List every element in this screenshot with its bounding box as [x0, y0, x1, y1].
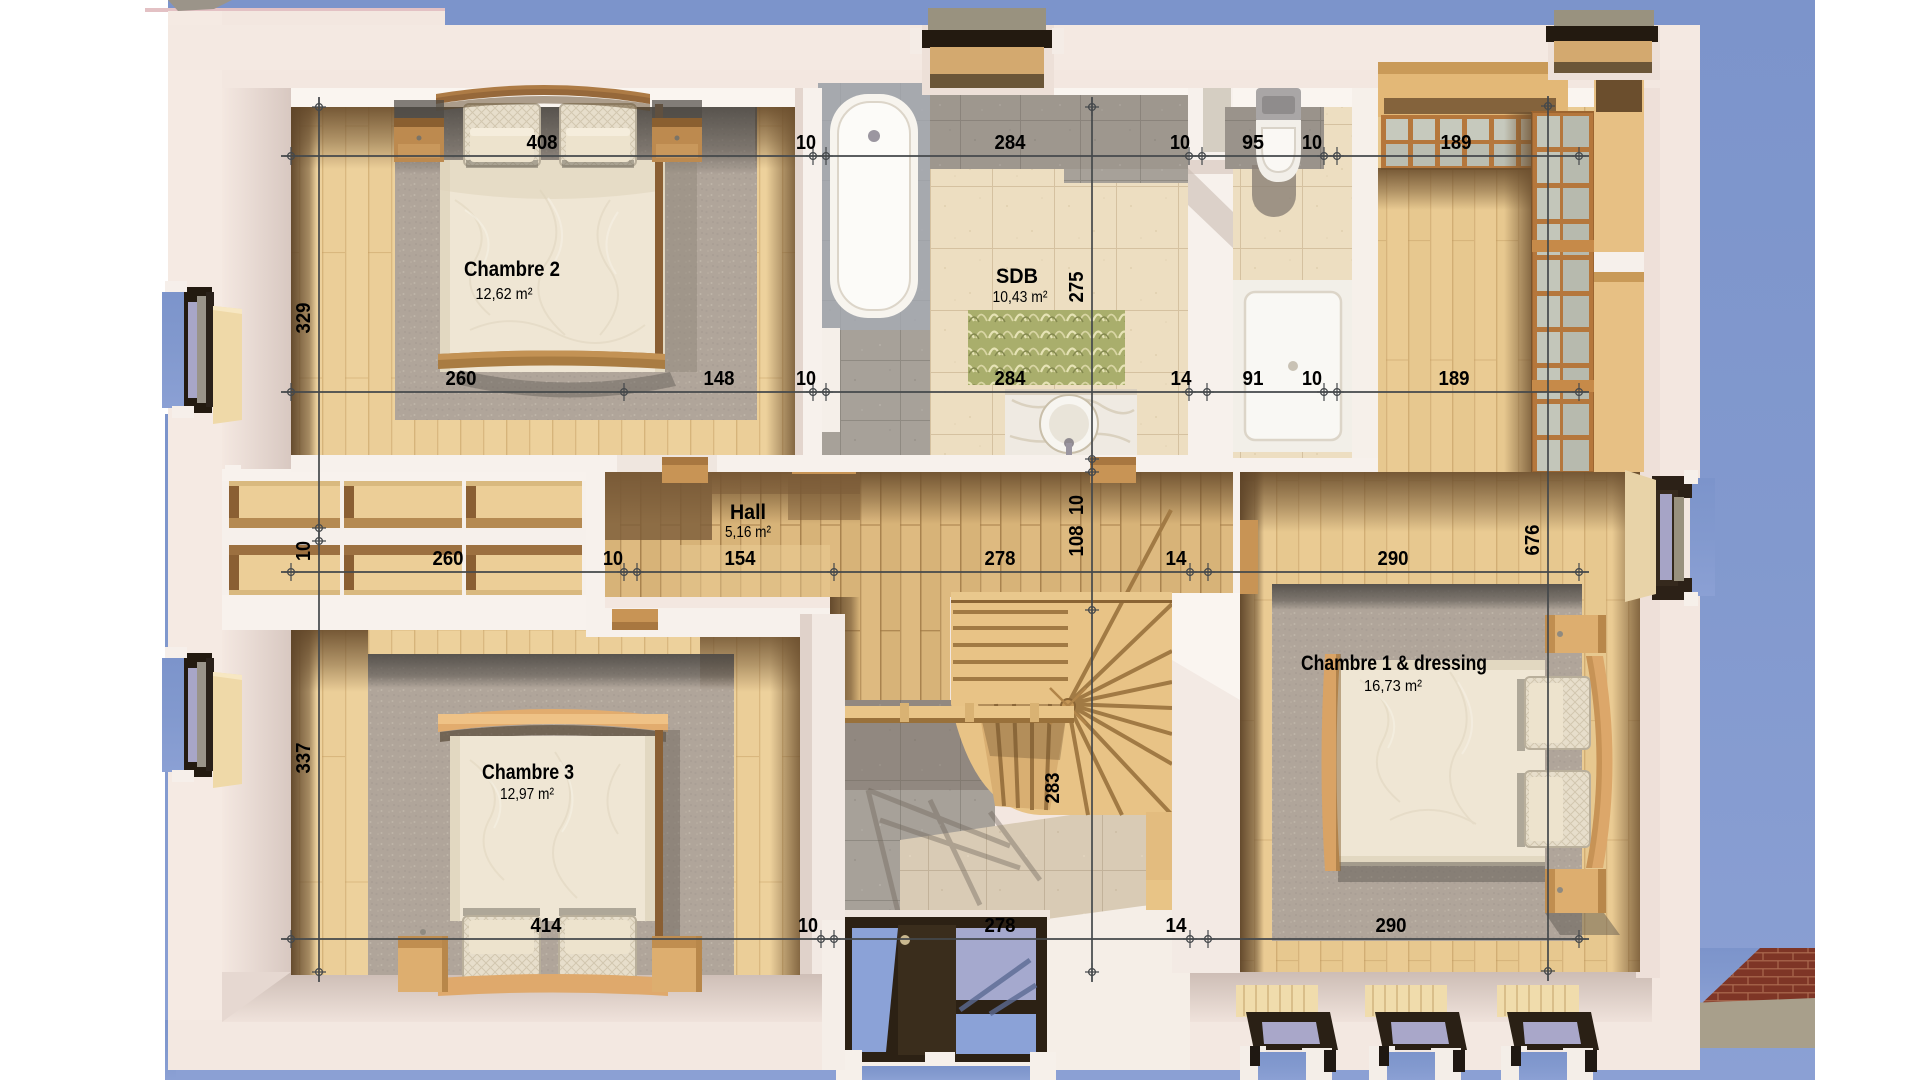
svg-text:12,62 m²: 12,62 m²: [476, 286, 534, 303]
svg-text:275: 275: [1066, 272, 1088, 303]
svg-text:154: 154: [725, 548, 757, 570]
svg-text:10: 10: [1302, 132, 1322, 154]
svg-text:260: 260: [433, 548, 464, 570]
svg-text:91: 91: [1243, 368, 1264, 390]
svg-text:12,97 m²: 12,97 m²: [500, 786, 555, 803]
svg-text:290: 290: [1376, 915, 1407, 937]
svg-text:14: 14: [1166, 915, 1188, 937]
svg-text:16,73 m²: 16,73 m²: [1364, 678, 1423, 695]
svg-text:676: 676: [1522, 525, 1544, 556]
svg-text:10: 10: [293, 541, 315, 561]
svg-text:5,16 m²: 5,16 m²: [725, 524, 772, 541]
svg-text:10: 10: [796, 132, 816, 154]
svg-text:414: 414: [531, 915, 563, 937]
svg-text:10: 10: [603, 548, 623, 570]
svg-text:10: 10: [1170, 132, 1190, 154]
svg-text:Chambre 2: Chambre 2: [464, 258, 560, 281]
svg-text:284: 284: [995, 132, 1027, 154]
svg-text:284: 284: [995, 368, 1027, 390]
svg-text:Chambre 1 & dressing: Chambre 1 & dressing: [1301, 652, 1487, 675]
svg-text:10: 10: [798, 915, 818, 937]
svg-text:278: 278: [985, 915, 1016, 937]
svg-text:14: 14: [1171, 368, 1193, 390]
svg-text:14: 14: [1166, 548, 1188, 570]
svg-text:337: 337: [293, 743, 315, 774]
svg-text:10,43 m²: 10,43 m²: [993, 289, 1049, 306]
svg-text:108: 108: [1066, 526, 1088, 557]
svg-text:290: 290: [1378, 548, 1409, 570]
svg-text:329: 329: [293, 303, 315, 334]
svg-text:Hall: Hall: [730, 501, 766, 524]
svg-text:189: 189: [1441, 132, 1472, 154]
svg-text:10: 10: [1302, 368, 1322, 390]
svg-text:278: 278: [985, 548, 1016, 570]
svg-text:260: 260: [446, 368, 477, 390]
svg-text:Chambre 3: Chambre 3: [482, 761, 574, 784]
svg-text:10: 10: [1066, 495, 1088, 515]
svg-text:148: 148: [704, 368, 735, 390]
svg-text:283: 283: [1042, 773, 1064, 804]
svg-text:SDB: SDB: [996, 265, 1038, 288]
svg-text:189: 189: [1439, 368, 1470, 390]
svg-text:95: 95: [1242, 132, 1264, 154]
svg-text:408: 408: [527, 132, 558, 154]
svg-text:10: 10: [796, 368, 816, 390]
